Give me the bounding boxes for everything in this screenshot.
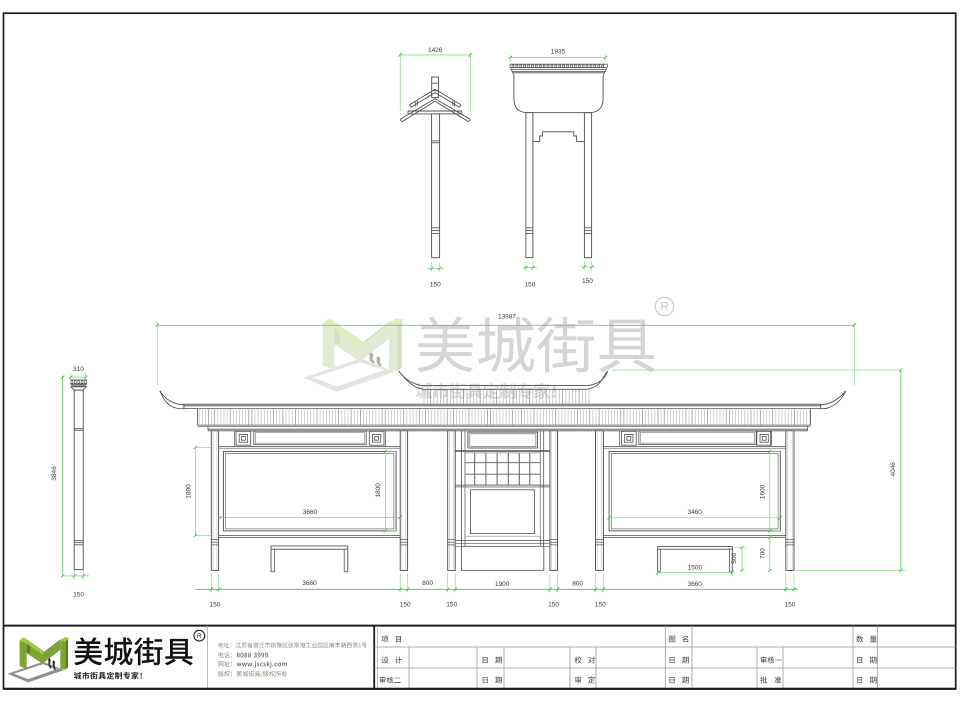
svg-text:3660: 3660 [687,581,702,588]
svg-text:150: 150 [73,591,84,598]
svg-text:1800: 1800 [375,483,382,498]
svg-text:3846: 3846 [51,466,58,481]
svg-text:R: R [660,302,668,314]
svg-text:4046: 4046 [890,462,897,477]
svg-text:150: 150 [524,282,535,289]
svg-text:800: 800 [422,580,433,587]
svg-text:1900: 1900 [495,581,510,588]
svg-text:310: 310 [73,366,84,373]
svg-text:1426: 1426 [428,47,443,54]
svg-text:150: 150 [430,282,441,289]
svg-text:1935: 1935 [551,49,566,56]
svg-text:R: R [197,633,202,640]
svg-text:150: 150 [785,602,796,609]
svg-text:150: 150 [582,278,593,285]
svg-text:500: 500 [731,552,738,563]
svg-text:150: 150 [209,602,220,609]
svg-text:700: 700 [760,548,767,559]
svg-text:150: 150 [595,602,606,609]
svg-text:150: 150 [446,602,457,609]
svg-text:800: 800 [572,581,583,588]
svg-text:3660: 3660 [303,509,318,516]
svg-text:1800: 1800 [185,484,192,499]
svg-text:1600: 1600 [759,484,766,499]
svg-text:150: 150 [548,602,559,609]
svg-text:150: 150 [400,602,411,609]
svg-text:13987: 13987 [498,313,516,320]
svg-text:3460: 3460 [687,509,702,516]
svg-text:1500: 1500 [688,564,703,571]
svg-text:3660: 3660 [302,580,317,587]
